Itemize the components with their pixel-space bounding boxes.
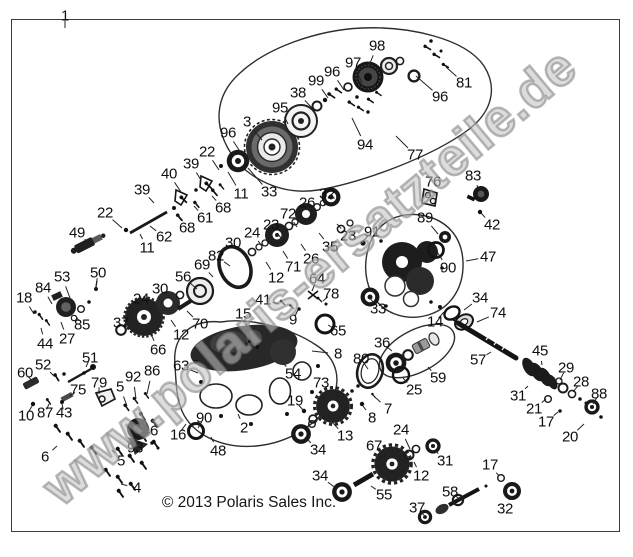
part-callout: 40 <box>161 167 177 182</box>
part-callout: 1 <box>61 9 69 24</box>
part-callout: 90 <box>196 411 212 426</box>
part-callout: 34 <box>312 469 328 484</box>
part-callout: 12 <box>173 328 189 343</box>
callout-layer: 1989796993895396949681773311223940392249… <box>0 0 633 557</box>
part-callout: 34 <box>472 291 488 306</box>
part-callout: 10 <box>18 409 34 424</box>
part-callout: 55 <box>376 488 392 503</box>
part-callout: 76 <box>425 175 441 190</box>
part-callout: 57 <box>470 353 486 368</box>
part-callout: 54 <box>285 367 301 382</box>
part-callout: 11 <box>140 241 155 256</box>
part-callout: 88 <box>591 387 607 402</box>
part-callout: 15 <box>235 307 251 322</box>
copyright-text: © 2013 Polaris Sales Inc. <box>162 494 336 512</box>
part-callout: 4 <box>133 481 141 496</box>
part-callout: 98 <box>369 39 385 54</box>
part-callout: 91 <box>364 225 380 240</box>
part-callout: 61 <box>197 211 213 226</box>
part-callout: 78 <box>323 287 339 302</box>
part-callout: 24 <box>133 292 149 307</box>
part-callout: 67 <box>366 439 382 454</box>
part-callout: 47 <box>480 250 496 265</box>
part-callout: 37 <box>409 501 425 516</box>
part-callout: 13 <box>337 429 353 444</box>
part-callout: 75 <box>70 383 86 398</box>
part-callout: 49 <box>69 226 85 241</box>
part-callout: 60 <box>17 366 33 381</box>
part-callout: 33 <box>261 185 277 200</box>
part-callout: 80 <box>353 352 369 367</box>
part-callout: 16 <box>170 428 186 443</box>
part-callout: 48 <box>210 444 226 459</box>
part-callout: 29 <box>558 361 574 376</box>
part-callout: 31 <box>437 454 453 469</box>
part-callout: 72 <box>280 207 296 222</box>
part-callout: 96 <box>432 90 448 105</box>
part-callout: 70 <box>192 317 208 332</box>
part-callout: 34 <box>310 443 326 458</box>
part-callout: 23 <box>263 218 279 233</box>
part-callout: 22 <box>97 206 113 221</box>
part-callout: 45 <box>532 344 548 359</box>
part-callout: 81 <box>456 76 472 91</box>
part-callout: 7 <box>384 402 392 417</box>
part-callout: 35 <box>322 240 338 255</box>
part-callout: 26 <box>299 196 315 211</box>
part-callout: 52 <box>35 358 51 373</box>
part-callout: 82 <box>208 249 224 264</box>
part-callout: 94 <box>357 138 373 153</box>
part-callout: 24 <box>393 423 409 438</box>
part-callout: 24 <box>244 226 260 241</box>
part-callout: 58 <box>442 485 458 500</box>
part-callout: 64 <box>309 272 325 287</box>
part-callout: 33 <box>370 302 386 317</box>
part-callout: 97 <box>345 56 361 71</box>
part-callout: 14 <box>427 315 443 330</box>
part-callout: 66 <box>150 343 166 358</box>
part-callout: 39 <box>183 157 199 172</box>
part-callout: 38 <box>290 86 306 101</box>
part-callout: 31 <box>510 389 526 404</box>
part-callout: 42 <box>484 218 500 233</box>
part-callout: 41 <box>255 293 271 308</box>
part-callout: 20 <box>562 430 578 445</box>
part-callout: 37 <box>113 316 129 331</box>
part-callout: 12 <box>268 271 284 286</box>
part-callout: 92 <box>125 370 141 385</box>
part-callout: 5 <box>116 380 124 395</box>
part-callout: 63 <box>173 359 189 374</box>
part-callout: 56 <box>175 270 191 285</box>
part-callout: 43 <box>56 406 72 421</box>
part-callout: 32 <box>497 502 513 517</box>
part-callout: 68 <box>215 201 231 216</box>
part-callout: 51 <box>82 351 98 366</box>
part-callout: 68 <box>179 221 195 236</box>
part-callout: 89 <box>417 211 433 226</box>
part-callout: 96 <box>220 126 236 141</box>
parts-diagram-page: 1989796993895396949681773311223940392249… <box>0 0 633 557</box>
part-callout: 65 <box>330 324 346 339</box>
part-callout: 12 <box>413 469 429 484</box>
part-callout: 99 <box>308 74 324 89</box>
part-callout: 93 <box>127 441 143 456</box>
part-callout: 69 <box>194 258 210 273</box>
part-callout: 25 <box>406 383 422 398</box>
part-callout: 46 <box>142 424 158 439</box>
part-callout: 96 <box>324 65 340 80</box>
part-callout: 27 <box>59 332 75 347</box>
part-callout: 8 <box>334 347 342 362</box>
part-callout: 22 <box>199 145 215 160</box>
part-callout: 95 <box>272 101 288 116</box>
part-callout: 28 <box>573 375 589 390</box>
part-callout: 90 <box>440 261 456 276</box>
part-callout: 44 <box>37 337 53 352</box>
part-callout: 30 <box>152 282 168 297</box>
part-callout: 53 <box>54 270 70 285</box>
part-callout: 79 <box>91 376 107 391</box>
part-callout: 50 <box>90 266 106 281</box>
part-callout: 18 <box>16 291 32 306</box>
part-callout: 23 <box>340 229 356 244</box>
part-callout: 19 <box>287 394 303 409</box>
part-callout: 87 <box>37 406 53 421</box>
part-callout: 84 <box>35 281 51 296</box>
part-callout: 36 <box>374 336 390 351</box>
part-callout: 86 <box>144 364 160 379</box>
part-callout: 11 <box>234 187 249 202</box>
part-callout: 71 <box>285 260 301 275</box>
part-callout: 5 <box>117 454 125 469</box>
part-callout: 17 <box>482 458 498 473</box>
part-callout: 62 <box>156 230 172 245</box>
part-callout: 17 <box>538 415 554 430</box>
part-callout: 8 <box>368 411 376 426</box>
part-callout: 30 <box>225 236 241 251</box>
part-callout: 6 <box>41 450 49 465</box>
part-callout: 74 <box>490 306 506 321</box>
part-callout: 39 <box>134 183 150 198</box>
part-callout: 59 <box>430 371 446 386</box>
part-callout: 26 <box>303 252 319 267</box>
part-callout: 77 <box>407 148 423 163</box>
part-callout: 32 <box>319 187 335 202</box>
part-callout: 3 <box>243 115 251 130</box>
part-callout: 9 <box>289 313 297 328</box>
part-callout: 73 <box>313 376 329 391</box>
part-callout: 83 <box>465 169 481 184</box>
part-callout: 85 <box>74 318 90 333</box>
part-callout: 2 <box>240 421 248 436</box>
